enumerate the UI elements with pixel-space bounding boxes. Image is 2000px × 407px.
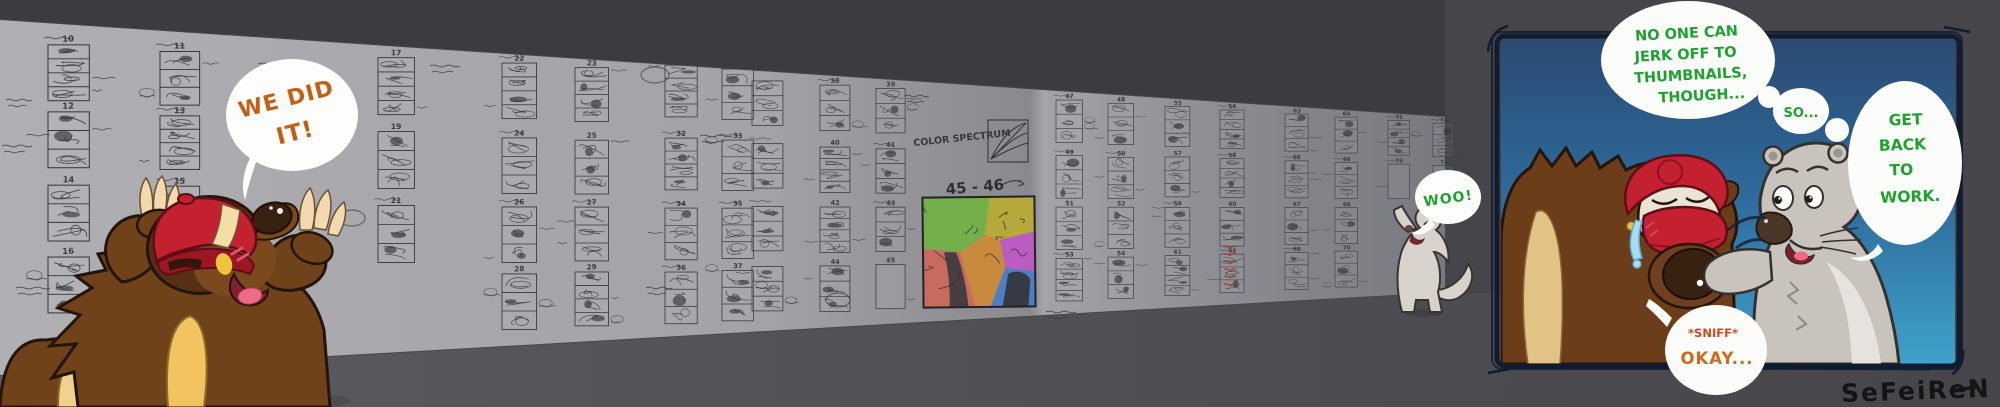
svg-text:GET: GET (1888, 110, 1923, 129)
page-number: 61 (1174, 250, 1182, 256)
page-number: 12 (62, 100, 74, 110)
page-number: 34 (676, 200, 686, 208)
page-number: 71 (1396, 115, 1404, 121)
page-number: 23 (587, 58, 597, 67)
page-number: 54 (1117, 250, 1125, 257)
page-number: 65 (1293, 155, 1301, 161)
page-number: 52 (1117, 200, 1126, 207)
thumbnail-strip (752, 81, 783, 125)
page-number: 74 (1440, 160, 1448, 166)
thumbnail-strip: 58 (1218, 153, 1244, 197)
page-number: 28 (514, 264, 524, 273)
thumbnail-strip: 60 (1220, 202, 1244, 246)
thumbnail-strip: 49 (1054, 149, 1083, 198)
thumbnail-strip: 24 (499, 128, 537, 193)
svg-text:SeFeiReN: SeFeiReN (1841, 374, 1992, 407)
so-text: SO... (1784, 106, 1819, 121)
page-number: 47 (1065, 93, 1074, 100)
thumbnail-strip (749, 138, 783, 188)
page-number: 40 (830, 139, 840, 147)
thumbnail-strip: 32 (662, 130, 697, 190)
thumbnail-strip (749, 201, 783, 251)
sniff-text: *SNIFF* (1688, 326, 1738, 340)
page-number: 21 (391, 196, 402, 205)
thumbnail-strip: 35 (719, 200, 753, 259)
page-number: 69 (1293, 247, 1301, 253)
svg-text:WORK.: WORK. (1880, 187, 1941, 207)
page-number: 68 (1343, 202, 1351, 208)
page-number: 60 (1228, 202, 1236, 208)
page-number: 59 (1174, 201, 1182, 207)
page-number: 39 (886, 80, 896, 88)
page-number: 48 (1117, 96, 1125, 103)
page-number: 64 (1343, 111, 1351, 117)
page-number: 72 (1440, 118, 1448, 124)
page-number: 45 (886, 256, 896, 264)
page-number: 16 (62, 246, 74, 256)
page-number: 32 (676, 130, 686, 138)
svg-text:BACK: BACK (1879, 135, 1928, 155)
page-number: 44 (830, 258, 840, 266)
page-number: 56 (1228, 104, 1236, 110)
page-number: 73 (1395, 158, 1403, 164)
page-number: 53 (1065, 252, 1074, 259)
page-number: 19 (391, 122, 402, 131)
page-number: 17 (391, 48, 402, 57)
page-number: 58 (1228, 153, 1236, 159)
thumbnail-strip: 51 (1056, 200, 1082, 249)
page-number: 70 (1343, 245, 1351, 251)
page-number: 43 (886, 199, 895, 207)
page-number: 31 (733, 61, 743, 69)
thumbnail-strip: 19 (378, 122, 414, 189)
page-number: 50 (1117, 150, 1125, 157)
page-number: 25 (587, 131, 597, 140)
svg-text:TO: TO (1889, 161, 1913, 180)
page-number: 63 (1293, 108, 1301, 114)
page-number: 67 (1293, 202, 1301, 208)
page-number: 33 (733, 132, 743, 140)
artist-signature: SeFeiReN (1841, 374, 1992, 407)
comic-illustration: 1011121314151617192122232425262728293031… (0, 0, 2000, 407)
page-number: 36 (676, 264, 686, 272)
scene-canvas: 1011121314151617192122232425262728293031… (0, 0, 2000, 407)
page-number: 66 (1343, 157, 1351, 163)
page-number: 57 (1174, 151, 1182, 157)
page-number: 29 (586, 262, 596, 271)
page-number: 51 (1065, 200, 1074, 207)
page-number: 37 (733, 262, 743, 270)
okay-text: OKAY... (1680, 349, 1753, 368)
color-spectrum-thumbnail (921, 196, 1035, 307)
thumbnail-strip: 56 (1218, 104, 1244, 148)
page-number: 49 (1065, 149, 1074, 156)
page-number: 55 (1174, 101, 1182, 107)
thumbnail-strip: 21 (375, 196, 415, 263)
thumbnail-strip: 36 (662, 264, 697, 324)
inset-comic-panel: NO ONE CAN JERK OFF TO THUMBNAILS, THOUG… (1488, 1, 1970, 395)
page-number: 42 (830, 199, 840, 207)
thumbnail-strip: 55 (1165, 101, 1190, 147)
page-number: 41 (886, 141, 896, 149)
page-number: 14 (62, 174, 74, 184)
